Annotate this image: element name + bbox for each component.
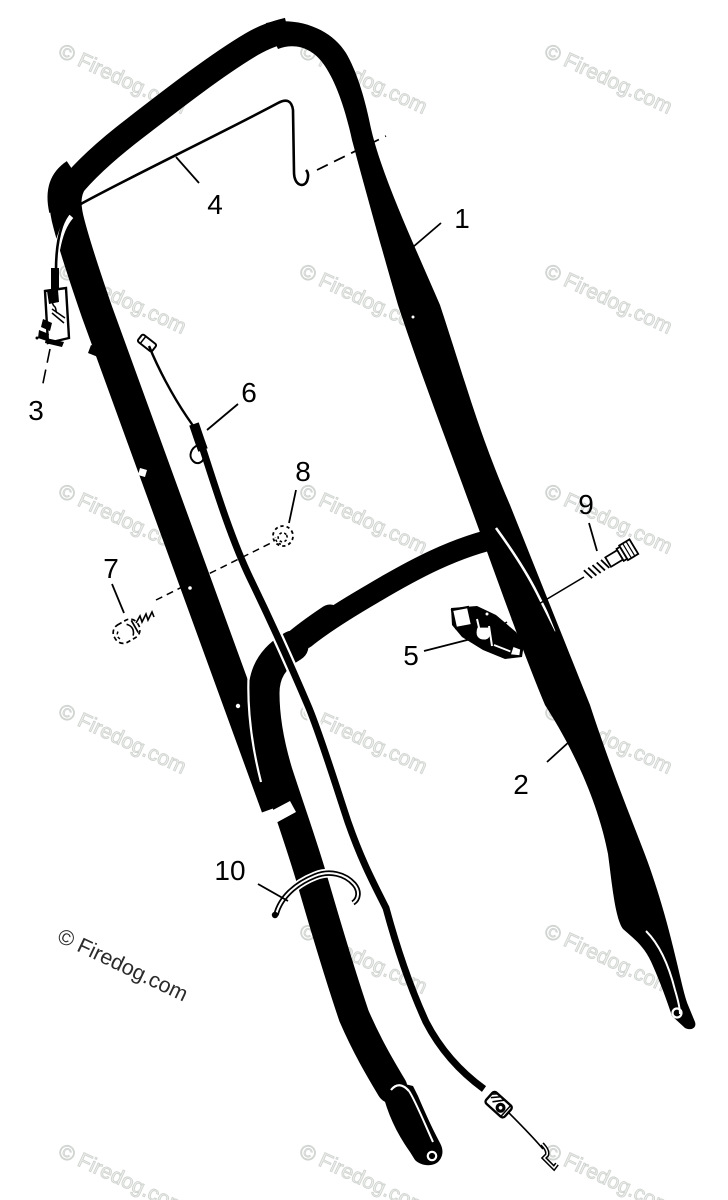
svg-text:5: 5: [403, 640, 419, 671]
svg-text:4: 4: [207, 189, 223, 220]
svg-text:10: 10: [214, 855, 245, 886]
svg-text:2: 2: [513, 769, 529, 800]
svg-text:6: 6: [241, 377, 257, 408]
svg-text:1: 1: [454, 203, 470, 234]
svg-text:8: 8: [295, 456, 311, 487]
svg-text:9: 9: [578, 489, 594, 520]
svg-text:7: 7: [103, 553, 119, 584]
svg-text:3: 3: [28, 395, 44, 426]
